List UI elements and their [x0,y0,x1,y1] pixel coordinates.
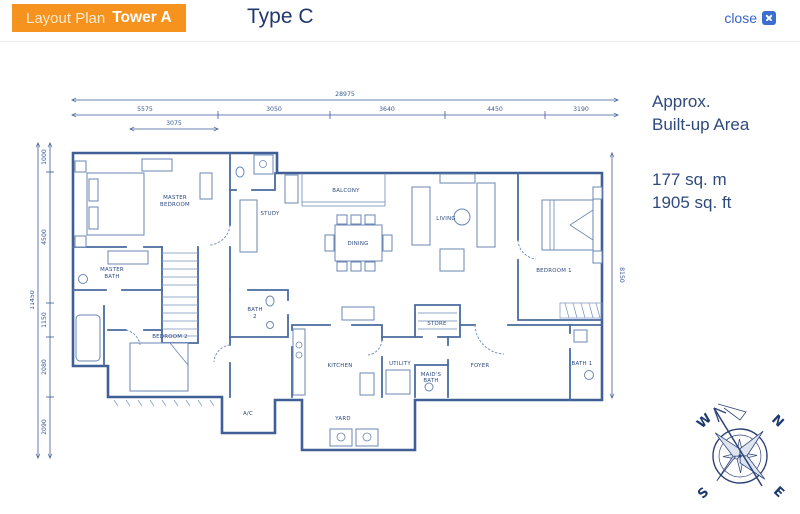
compass-n: N [768,412,786,430]
close-icon[interactable] [762,11,776,25]
dim-right-overall: 8150 [618,267,625,283]
svg-text:2: 2 [253,314,257,320]
dim-seg: 1150 [41,312,48,328]
unit-type-title: Type C [247,5,314,29]
label-utility: UTILITY [389,361,411,367]
label-store: STORE [427,321,447,327]
approx-line1: Approx. [652,90,749,113]
label-bath1: BATH 1 [572,361,593,367]
dim-seg: 2080 [41,359,48,375]
svg-text:BATH: BATH [423,378,438,384]
label-study: STUDY [260,211,280,217]
compass-s: S [695,485,712,502]
dim-seg: 1000 [41,149,48,165]
close-label[interactable]: close [724,10,757,26]
exterior-walls [73,153,602,450]
dimension-top: 28975 5575 3050 3640 4450 3190 3075 [72,91,618,129]
dim-seg: 4450 [487,106,503,113]
label-balcony: BALCONY [332,188,360,194]
dim-seg: 3640 [379,106,395,113]
dim-left-overall: 11450 [30,290,36,310]
dim-top-overall: 28975 [335,91,355,98]
dim-seg: 3050 [266,106,282,113]
layout-plan-label: Layout Plan [26,10,105,27]
compass-e: E [770,484,787,501]
label-ac: A/C [243,411,253,417]
label-bath2: BATH [247,307,262,313]
label-bedroom2: BEDROOM 2 [152,334,188,340]
dim-top-sub: 3075 [166,120,182,127]
dim-seg: 5575 [137,106,153,113]
label-living: LIVING [436,216,456,222]
header-bar: Layout Plan Tower A [12,4,186,32]
tower-label: Tower A [112,9,171,27]
approx-line2: Built-up Area [652,113,749,136]
area-imperial: 1905 sq. ft [652,191,749,214]
dim-seg: 3190 [573,106,589,113]
builtup-area-info: Approx. Built-up Area 177 sq. m 1905 sq.… [652,90,749,214]
furniture [75,155,602,446]
close-button[interactable]: close [724,10,776,26]
dim-seg: 4500 [41,229,48,245]
layout-plan-popup: Layout Plan Tower A Type C close Approx.… [0,0,800,514]
label-master-bath: MASTER [100,267,124,273]
label-dining: DINING [347,241,368,247]
label-kitchen: KITCHEN [327,363,352,369]
floor-plan: 28975 5575 3050 3640 4450 3190 3075 1145… [30,75,630,485]
svg-text:BATH: BATH [104,274,119,280]
compass-w: W [694,411,715,432]
label-bedroom1: BEDROOM 1 [536,268,572,274]
label-yard: YARD [334,416,350,422]
dimension-left: 11450 1000 4500 1150 2080 2090 [30,143,54,458]
label-master-bedroom: MASTER [163,195,187,201]
label-foyer: FOYER [471,363,490,369]
header-divider [0,41,800,42]
svg-text:BEDROOM: BEDROOM [160,202,190,208]
compass-rose: W N S E [690,392,798,514]
area-metric: 177 sq. m [652,168,749,191]
dimension-right: 8150 [612,153,625,398]
dim-seg: 2090 [41,419,48,435]
